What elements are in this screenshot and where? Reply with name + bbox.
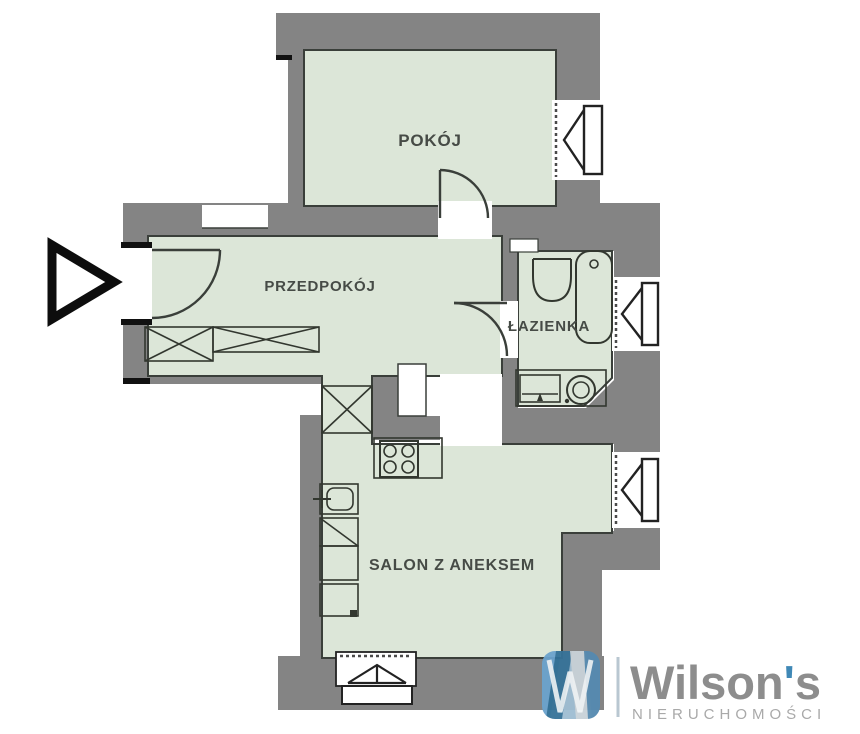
balcony-sill	[342, 686, 412, 704]
salon-bottom-window-icon	[336, 652, 416, 704]
wall-hall-top	[130, 203, 442, 237]
room-label-pokoj: POKÓJ	[398, 131, 462, 150]
room-label-lazienka: ŁAZIENKA	[508, 318, 590, 335]
wall-salon-left	[300, 415, 322, 670]
logo-name-post: s	[795, 656, 821, 709]
entrance-opening	[121, 247, 152, 321]
wall-pokoj-top	[276, 13, 598, 51]
fridge-niche	[398, 364, 426, 416]
entrance-arrow-icon	[52, 245, 114, 319]
floor-plan-canvas: POKÓJ PRZEDPOKÓJ ŁAZIENKA SALON Z ANEKSE…	[0, 0, 860, 734]
hall-salon-passage	[440, 374, 502, 446]
room-pokoj-floor	[304, 50, 556, 206]
logo-name-pre: Wilson	[630, 656, 784, 709]
salon-right-window-icon	[612, 452, 660, 528]
bathroom-window-icon	[612, 277, 660, 351]
room-label-salon: SALON Z ANEKSEM	[369, 557, 535, 574]
room-label-przedpokoj: PRZEDPOKÓJ	[264, 277, 375, 295]
bath-wall-niche	[510, 239, 538, 252]
brand-logo: Wilson's NIERUCHOMOŚCI	[542, 651, 826, 723]
logo-subtitle: NIERUCHOMOŚCI	[632, 705, 826, 723]
pokoj-window-icon	[552, 100, 602, 180]
logo-apostrophe: '	[784, 656, 795, 709]
floor-plan-page: POKÓJ PRZEDPOKÓJ ŁAZIENKA SALON Z ANEKSE…	[0, 0, 860, 734]
hall-wall-niche	[202, 205, 268, 228]
pokoj-door-opening	[438, 201, 492, 239]
logo-wordmark: Wilson's	[630, 656, 821, 709]
logo-monogram-badge	[542, 651, 600, 719]
wall-right-step	[562, 531, 660, 570]
